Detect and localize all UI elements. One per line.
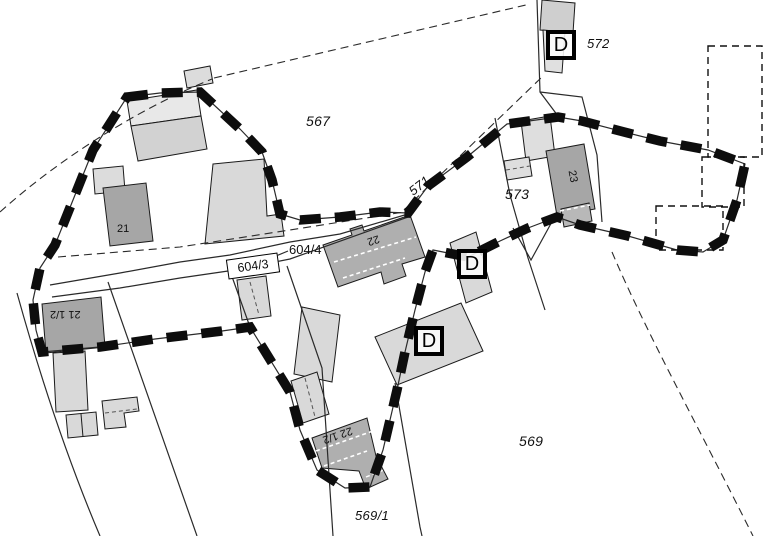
building-572-upper [540, 0, 575, 33]
building-label-23: 23 [566, 169, 579, 183]
farmstead-marker-top: D [546, 30, 576, 60]
farmstead-marker-letter: D [465, 253, 479, 276]
building-strip [53, 351, 88, 412]
building-label-21-half: 21 1/2 [50, 308, 81, 319]
building-label-21: 21 [117, 224, 129, 235]
building-22 [323, 215, 425, 287]
parcel-label-569: 569 [519, 434, 543, 448]
parcel-label-573: 573 [505, 187, 529, 201]
dashed-569-east [612, 252, 753, 536]
farmstead-marker-letter: D [554, 34, 568, 57]
dashed-567-north [214, 4, 530, 78]
farmstead-marker-letter: D [422, 330, 436, 353]
dashed-rect-tall [708, 46, 762, 157]
road-label-604-4: 604/4 [289, 243, 322, 256]
parcel-label-567: 567 [306, 114, 330, 128]
cadastral-map: 567 571 572 573 569 569/1 604/3 604/4 21… [0, 0, 784, 536]
farmstead-marker-lower: D [414, 326, 444, 356]
parcel-label-569-1: 569/1 [355, 509, 389, 522]
road-label-604-3: 604/3 [237, 257, 270, 275]
parcel-label-572: 572 [587, 37, 610, 50]
farmstead-marker-middle: D [457, 249, 487, 279]
building-21 [103, 183, 153, 246]
building-tall-light [294, 307, 340, 382]
dashed-rects-layer [656, 46, 762, 250]
line-569-1-east [395, 383, 422, 536]
outbuilding-573 [504, 157, 532, 180]
map-canvas [0, 0, 784, 536]
